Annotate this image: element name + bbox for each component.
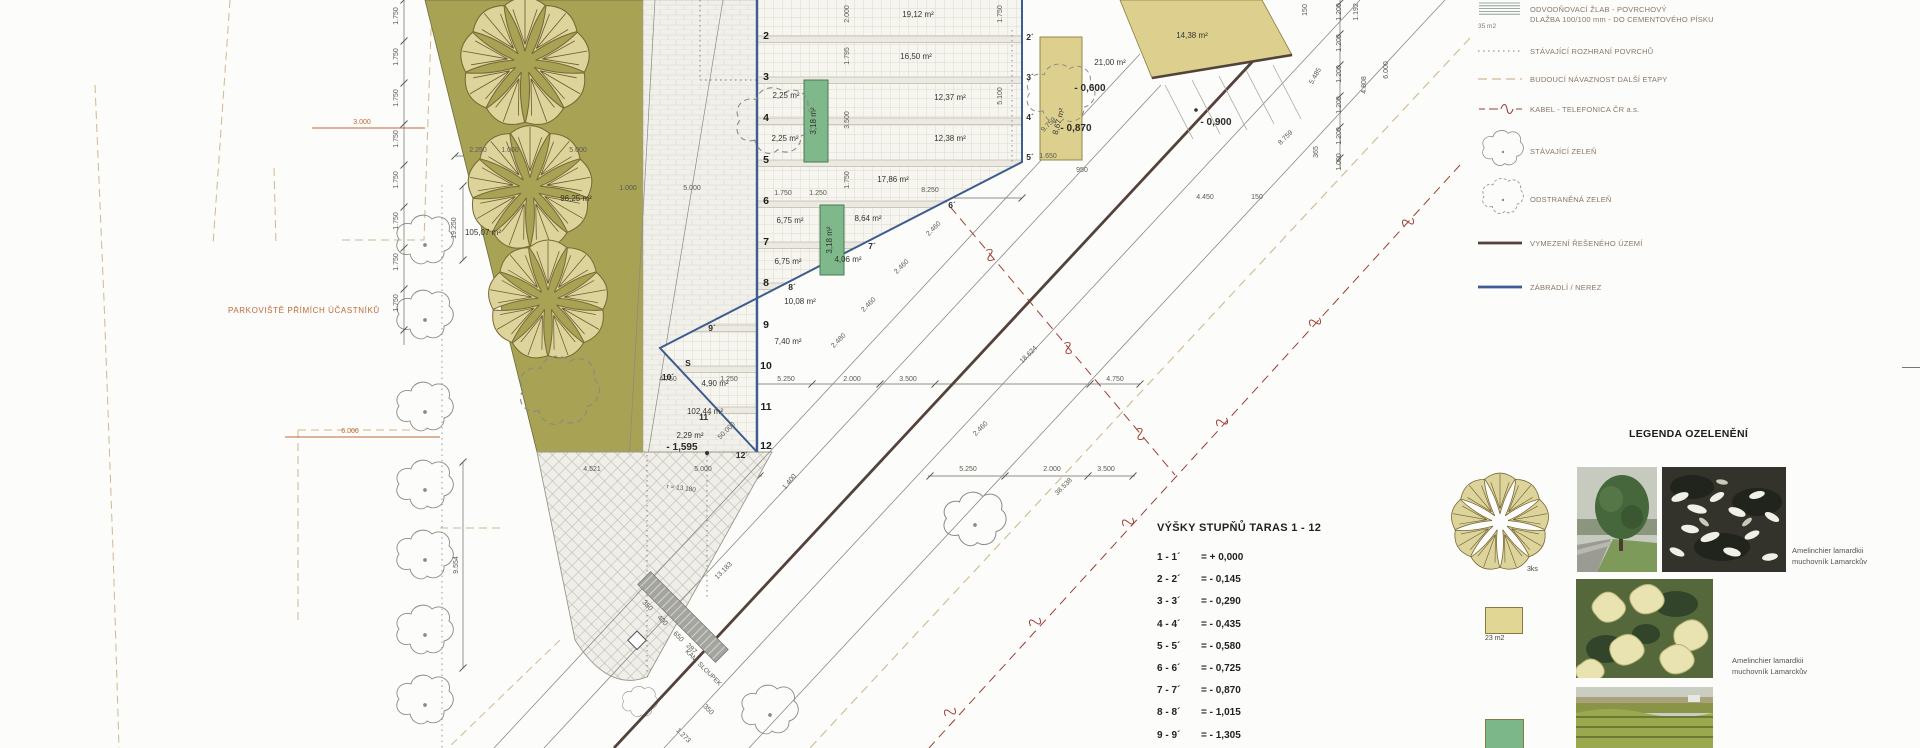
survey-point xyxy=(705,451,709,455)
height-row: 7 - 7´= - 0,870 xyxy=(1157,685,1347,696)
terrace-number-primed: 5´ xyxy=(1026,152,1034,162)
dim-label: 1.750 xyxy=(393,89,400,107)
terrace-number: 7 xyxy=(763,236,769,248)
legend-tree-symbol xyxy=(1450,464,1550,580)
terrace-number-primed: 3´ xyxy=(1026,72,1034,82)
terrace-number: 2 xyxy=(763,30,769,42)
legend-symbol-note: 35 m2 xyxy=(1478,23,1530,30)
height-row-value: = - 0,290 xyxy=(1201,596,1241,607)
dim-label: 650 xyxy=(671,630,684,643)
area-label: 2,25 m² xyxy=(772,91,799,100)
crosswalk-hatch xyxy=(1165,65,1301,139)
height-row-value: = - 1,015 xyxy=(1201,707,1241,718)
dim-label: 4.808 xyxy=(1361,76,1368,94)
dim-label: 950 xyxy=(1076,167,1088,174)
legend-item: ODSTRANĚNÁ ZELEŇ xyxy=(1478,174,1612,226)
legend-item: VYMEZENÍ ŘEŠENÉHO ÚZEMÍ xyxy=(1478,236,1643,252)
terrace-number-primed: 12´ xyxy=(736,450,748,460)
height-row: 6 - 6´= - 0,725 xyxy=(1157,663,1347,674)
height-row-key: 7 - 7´ xyxy=(1157,685,1201,696)
site-plan-drawing: 19.2509.5543.0006.0001.7501.7501.7501.75… xyxy=(0,0,1480,748)
dim-label: 8.759 xyxy=(1277,129,1294,146)
legend-item: STÁVAJÍCÍ ZELEŇ xyxy=(1478,126,1597,178)
height-row: 8 - 8´= - 1,015 xyxy=(1157,707,1347,718)
height-row-key: 4 - 4´ xyxy=(1157,619,1201,630)
height-row-value: = - 0,870 xyxy=(1201,685,1241,696)
legend-item: 35 m2ODVODŇOVACÍ ŽLAB - POVRCHOVÝDLAŽBA … xyxy=(1478,0,1714,30)
dim-label: 2.460 xyxy=(893,258,910,275)
terrace-number: 4 xyxy=(763,112,769,124)
dim-label: 19.250 xyxy=(451,217,458,239)
height-row-value: = - 0,435 xyxy=(1201,619,1241,630)
terrace-number-primed: 9´ xyxy=(708,323,716,333)
area-label: 3,18 m² xyxy=(825,226,834,253)
dim-label: 2.000 xyxy=(843,376,861,383)
dim-label: 1.750 xyxy=(393,294,400,312)
dim-label: 1.000 xyxy=(501,147,519,154)
terrace-number-primed: 4´ xyxy=(1026,112,1034,122)
dim-label: 2.460 xyxy=(860,296,877,313)
terrace-number-primed: 2´ xyxy=(1026,32,1034,42)
dim-label: 5.250 xyxy=(959,466,977,473)
dim-label: 1.192 xyxy=(1353,3,1360,21)
terrace-number-primed: 7´ xyxy=(868,241,876,251)
dim-label: 1.250 xyxy=(809,190,827,197)
area-label: 8,64 m² xyxy=(854,214,881,223)
legend-item-label: STÁVAJÍCÍ ZELEŇ xyxy=(1530,147,1597,157)
photo-street-tree xyxy=(1577,467,1657,572)
height-row-value: = + 0,000 xyxy=(1201,552,1243,563)
level-label: - 0,600 xyxy=(1074,83,1106,94)
area-label: 4,06 m² xyxy=(834,255,861,264)
parking-area-label: PARKOVIŠTĚ PŘÍMÍCH ÚČASTNÍKŮ xyxy=(228,306,380,315)
dim-label: 365 xyxy=(1313,146,1320,158)
area-label: 7,40 m² xyxy=(774,337,801,346)
dashed-tan-line-symbol xyxy=(1478,74,1524,84)
terrace-number-primed: 10´ xyxy=(662,372,674,382)
height-row: 4 - 4´= - 0,435 xyxy=(1157,619,1347,630)
dim-label: 150 xyxy=(1302,4,1309,16)
dim-label: 18.624 xyxy=(1019,345,1039,365)
legend-item: STÁVAJÍCÍ ROZHRANÍ POVRCHŮ xyxy=(1478,44,1653,60)
tan-planting-swatch xyxy=(1485,607,1523,634)
terrace-number: 9 xyxy=(763,319,769,331)
area-label: 17,86 m² xyxy=(877,175,909,184)
height-row-key: 2 - 2´ xyxy=(1157,574,1201,585)
dim-label: 1.750 xyxy=(393,171,400,189)
dim-label: 350 xyxy=(701,703,714,716)
level-point xyxy=(1194,108,1198,112)
dim-label: 5.100 xyxy=(997,87,1004,105)
height-row-key: 8 - 8´ xyxy=(1157,707,1201,718)
dim-label: 38.538 xyxy=(1054,477,1074,497)
dim-label: 3.500 xyxy=(1097,466,1115,473)
height-row-value: = - 0,725 xyxy=(1201,663,1241,674)
dim-label: 150 xyxy=(1251,194,1263,201)
height-row-key: 6 - 6´ xyxy=(1157,663,1201,674)
area-label: 6,75 m² xyxy=(774,257,801,266)
drain-hatch-symbol xyxy=(1478,1,1524,17)
fan-paving xyxy=(537,452,772,680)
tan-swatch-area: 23 m2 xyxy=(1485,635,1504,642)
terrace-number: 12 xyxy=(760,440,772,452)
area-label: 14,38 m² xyxy=(1176,31,1208,40)
site-plan-document: 19.2509.5543.0006.0001.7501.7501.7501.75… xyxy=(0,0,1920,748)
dim-label: 2.460 xyxy=(972,420,989,437)
dim-label: 4.750 xyxy=(1106,376,1124,383)
dim-label: 4.450 xyxy=(1196,194,1214,201)
legend-item-label: BUDOUCÍ NÁVAZNOST DALŠÍ ETAPY xyxy=(1530,75,1668,85)
dim-label: 1.000 xyxy=(1336,153,1343,171)
dim-label: 1.200 xyxy=(1336,65,1343,83)
greenery-legend-title: LEGENDA OZELENĚNÍ xyxy=(1629,428,1748,440)
dim-label: 1.273 xyxy=(674,727,691,744)
height-row: 3 - 3´= - 0,290 xyxy=(1157,596,1347,607)
legend-item: KABEL - TELEFONICA ČR a.s. xyxy=(1478,102,1639,118)
height-row-key: 5 - 5´ xyxy=(1157,641,1201,652)
level-label: - 0,870 xyxy=(1060,123,1092,134)
dim-label: 1.750 xyxy=(997,5,1004,23)
dim-label: 6.000 xyxy=(341,428,359,435)
terrace-number-primed: S xyxy=(685,358,691,368)
height-row-value: = - 1,305 xyxy=(1201,730,1241,741)
terrace-number: 8 xyxy=(763,277,769,289)
dim-label: 4.521 xyxy=(583,466,601,473)
railing-line-symbol xyxy=(1478,282,1524,292)
legend-item: BUDOUCÍ NÁVAZNOST DALŠÍ ETAPY xyxy=(1478,72,1668,88)
legend-item-label: ODVODŇOVACÍ ŽLAB - POVRCHOVÝDLAŽBA 100/1… xyxy=(1530,5,1714,25)
level-label: - 1,595 xyxy=(666,442,698,453)
photo-white-flowers xyxy=(1662,467,1786,572)
height-row-value: = - 0,580 xyxy=(1201,641,1241,652)
terrace-number: 6 xyxy=(763,195,769,207)
legend-item: ZÁBRADLÍ / NEREZ xyxy=(1478,280,1602,296)
height-row-key: 9 - 9´ xyxy=(1157,730,1201,741)
legend-item-label: VYMEZENÍ ŘEŠENÉHO ÚZEMÍ xyxy=(1530,239,1643,249)
dim-label: 1.200 xyxy=(1336,34,1343,52)
dotted-line-symbol xyxy=(1478,46,1524,56)
plant-label: Amelinchier lamardkii muchovník Lamarcků… xyxy=(1792,546,1867,567)
area-label: 12,37 m² xyxy=(934,93,966,102)
dim-label: 5.000 xyxy=(694,466,712,473)
terrace-heights-table: VÝŠKY STUPŇŮ TARAS 1 - 12 1 - 1´= + 0,00… xyxy=(1157,522,1347,534)
height-row: 1 - 1´= + 0,000 xyxy=(1157,552,1347,563)
dim-label: 2.250 xyxy=(469,147,487,154)
dim-label: 1.750 xyxy=(774,190,792,197)
terrace-number: 3 xyxy=(763,71,769,83)
height-row-key: 1 - 1´ xyxy=(1157,552,1201,563)
removed-greenery-symbol xyxy=(1478,173,1528,223)
area-label: 16,50 m² xyxy=(900,52,932,61)
dim-label: 5.000 xyxy=(683,185,701,192)
photo-ivy-leaves xyxy=(1576,579,1713,678)
heights-title: VÝŠKY STUPŇŮ TARAS 1 - 12 xyxy=(1157,522,1347,534)
terrace-number-primed: 8´ xyxy=(788,282,796,292)
cable-line-symbol xyxy=(1478,101,1524,115)
area-label: 21,00 m² xyxy=(1094,58,1126,67)
dim-label: 3.500 xyxy=(844,111,851,129)
legend-item-label: KABEL - TELEFONICA ČR a.s. xyxy=(1530,105,1639,115)
terrace-number-primed: 11´ xyxy=(699,412,711,422)
legend-item-label: ZÁBRADLÍ / NEREZ xyxy=(1530,283,1602,293)
dim-label: 9.554 xyxy=(453,556,460,574)
orange-dimension-lines xyxy=(285,128,440,437)
dim-label: 1.750 xyxy=(393,48,400,66)
area-label: 96,25 m² xyxy=(560,194,592,203)
height-row: 5 - 5´= - 0,580 xyxy=(1157,641,1347,652)
dim-label: 5.250 xyxy=(777,376,795,383)
dim-label: 1.750 xyxy=(393,253,400,271)
dim-label: 6.000 xyxy=(1383,61,1390,79)
dim-label: 2.480 xyxy=(830,332,847,349)
dim-label: 1.650 xyxy=(1039,153,1057,160)
plant-label: Amelinchier lamardkii muchovník Lamarcků… xyxy=(1732,656,1807,677)
dim-label: 3.500 xyxy=(899,376,917,383)
dim-label: 3.000 xyxy=(353,119,371,126)
dim-label: 13.183 xyxy=(714,561,734,581)
area-label: 2,29 m² xyxy=(676,431,703,440)
dim-label: 1.750 xyxy=(393,130,400,148)
boundary-line-symbol xyxy=(1478,238,1524,248)
area-label: 19,12 m² xyxy=(902,10,934,19)
area-label: 10,08 m² xyxy=(784,297,816,306)
dim-label: 1.200 xyxy=(1336,127,1343,145)
height-row: 2 - 2´= - 0,145 xyxy=(1157,574,1347,585)
dim-label: 1.750 xyxy=(393,212,400,230)
legend-item-label: ODSTRANĚNÁ ZELEŇ xyxy=(1530,195,1612,205)
existing-greenery-symbol xyxy=(1478,125,1528,175)
height-row: 9 - 9´= - 1,305 xyxy=(1157,730,1347,741)
tree-quantity: 3ks xyxy=(1527,566,1538,573)
area-label: 105,07 m² xyxy=(465,228,501,237)
height-row-value: = - 0,145 xyxy=(1201,574,1241,585)
area-label: 4,90 m² xyxy=(701,379,728,388)
dim-label: 5.485 xyxy=(1308,67,1323,86)
terrace-number-primed: 6´ xyxy=(948,200,956,210)
tan-planting-rect xyxy=(1040,37,1082,160)
dim-label: 5.000 xyxy=(569,147,587,154)
legend-item-label: STÁVAJÍCÍ ROZHRANÍ POVRCHŮ xyxy=(1530,47,1653,57)
dim-label: 1.200 xyxy=(1336,3,1343,21)
dim-label: 2.460 xyxy=(925,220,942,237)
dim-label: 1.795 xyxy=(844,47,851,65)
area-label: 6,75 m² xyxy=(776,216,803,225)
level-label: - 0,900 xyxy=(1200,117,1232,128)
area-label: 3,18 m² xyxy=(809,107,818,134)
dim-label: 1.750 xyxy=(844,171,851,189)
dim-label: 8.250 xyxy=(921,187,939,194)
area-label: 2,25 m² xyxy=(771,134,798,143)
corner-dimension-line xyxy=(1902,367,1920,368)
dim-label: 2.000 xyxy=(1043,466,1061,473)
dim-label: 1.750 xyxy=(393,7,400,25)
dim-label: 1.200 xyxy=(1336,96,1343,114)
terrace-number: 10 xyxy=(760,360,772,372)
dim-label: 2.000 xyxy=(844,5,851,23)
terrace-number: 11 xyxy=(760,401,771,413)
area-label: 12,38 m² xyxy=(934,134,966,143)
dim-label: 1.000 xyxy=(619,185,637,192)
dim-label: 1.400 xyxy=(782,473,799,491)
height-row-key: 3 - 3´ xyxy=(1157,596,1201,607)
photo-hedge xyxy=(1576,687,1713,748)
green-planting-swatch xyxy=(1485,719,1524,748)
terrace-number: 5 xyxy=(763,154,769,166)
